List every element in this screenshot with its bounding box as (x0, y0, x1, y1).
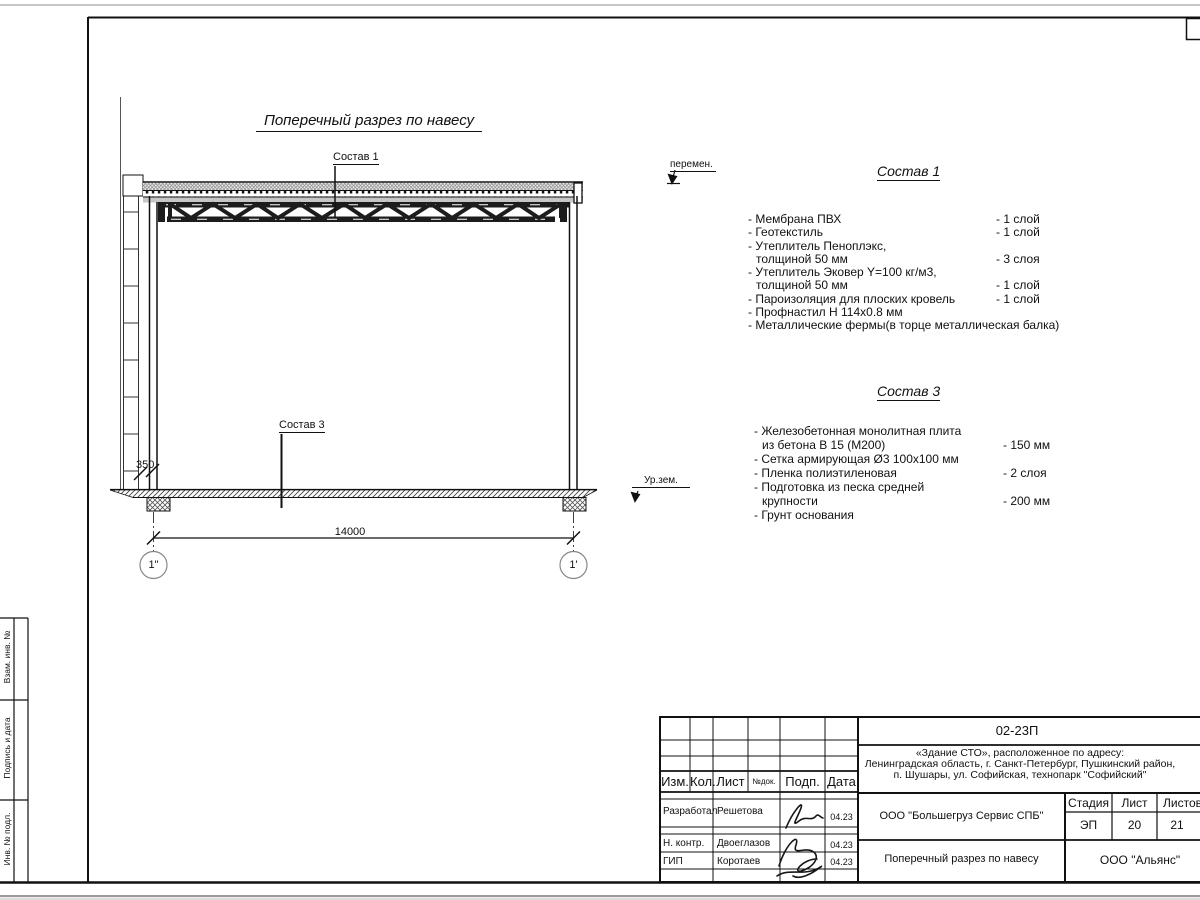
axis-markers (140, 552, 587, 579)
stamp-name-dvoeglazov: Двоеглазов (717, 838, 770, 849)
axis-label-left: 1" (140, 559, 167, 571)
dim-14000-label: 14000 (310, 526, 390, 538)
list-item: - Профнастил Н 114х0.8 мм (748, 306, 1093, 319)
sostav1-list: - Мембрана ПВХ- 1 слой - Геотекстиль- 1 … (748, 213, 1093, 333)
dim-350-label: 350 (136, 459, 154, 471)
col-header-izm: Изм. (660, 774, 690, 789)
list-item: - Подготовка из песка средней (754, 480, 1094, 494)
stamp-date-3: 04.23 (825, 857, 858, 867)
footings (147, 498, 586, 512)
stamp-doc-code: 02-23П (858, 723, 1176, 738)
list-item: - Геотекстиль- 1 слой (748, 226, 1093, 239)
col-header-kol: Кол. (690, 774, 713, 789)
signature-razrabotal (786, 805, 823, 828)
stamp-sheet-label: Лист (1112, 796, 1157, 810)
list-item: из бетона В 15 (М200)- 150 мм (754, 438, 1094, 452)
truss (158, 202, 570, 222)
col-header-ndok: №док. (748, 777, 780, 786)
stamp-sheet-value: 20 (1112, 818, 1157, 832)
truss-left-bearing (158, 202, 165, 222)
floor-slab (110, 490, 597, 498)
stamp-name-korotaev: Коротаев (717, 856, 760, 867)
stamp-date-1: 04.23 (825, 812, 858, 822)
stamp-org: ООО "Альянс" (1065, 853, 1200, 867)
stamp-role-gip: ГИП (663, 856, 683, 867)
stamp-company: ООО "Большегруз Сервис СПБ" (858, 810, 1065, 822)
sostav1-callout-label: Состав 1 (333, 151, 379, 165)
margin-label-podpis-data: Подпись и дата (2, 698, 12, 798)
drawing-title: Поперечный разрез по навесу (256, 112, 482, 132)
sostav3-title: Состав 3 (877, 383, 940, 401)
list-item: - Грунт основания (754, 508, 1094, 522)
drawing-sheet: Поперечный разрез по навесу Состав 1 Сос… (0, 0, 1200, 900)
roof-layers (143, 182, 583, 203)
sostav1-title: Состав 1 (877, 163, 940, 181)
col-header-data: Дата (825, 774, 858, 789)
list-item: - Пленка полиэтиленовая- 2 слоя (754, 466, 1094, 480)
list-item: - Мембрана ПВХ- 1 слой (748, 213, 1093, 226)
stamp-role-nkontr: Н. контр. (663, 838, 704, 849)
stamp-name-reshetova: Решетова (717, 806, 763, 817)
sostav3-list: - Железобетонная монолитная плита из бет… (754, 424, 1094, 522)
stamp-stage-value: ЭП (1065, 818, 1112, 832)
truss-right-bearing (560, 202, 567, 222)
corner-box (1187, 19, 1200, 40)
margin-label-inv-podl: Инв. № подл. (2, 798, 12, 880)
roof-right-cap (574, 183, 582, 203)
peremen-mark (667, 170, 680, 184)
stamp-stage-label: Стадия (1065, 796, 1112, 810)
list-item: крупности- 200 мм (754, 494, 1094, 508)
stamp-sheets-label: Листов (1163, 796, 1200, 810)
list-item: - Металлические фермы(в торце металличес… (748, 319, 1093, 332)
stamp-sheets-value: 21 (1157, 818, 1197, 832)
margin-label-vzam-inv: Взам. инв. № (2, 616, 12, 698)
columns (150, 196, 578, 490)
ground-level-label: Ур.зем. (632, 475, 690, 488)
list-item: - Утеплитель Эковер Y=100 кг/м3, (748, 266, 1093, 279)
peremen-label: перемен. (670, 159, 716, 172)
list-item: - Сетка армирующая Ø3 100х100 мм (754, 452, 1094, 466)
axis-label-right: 1' (560, 559, 587, 571)
ground-level-mark (632, 491, 640, 502)
stamp-role-razrabotal: Разработал (663, 806, 717, 817)
signatures (777, 805, 823, 877)
signature-gip (777, 839, 822, 877)
list-item: толщиной 50 мм- 3 слоя (748, 253, 1093, 266)
stamp-object-line3: п. Шушары, ул. Софийская, технопарк "Соф… (860, 769, 1180, 781)
col-header-list: Лист (713, 774, 748, 789)
list-item: - Железобетонная монолитная плита (754, 424, 1094, 438)
sostav3-callout-label: Состав 3 (279, 419, 325, 433)
list-item: толщиной 50 мм- 1 слой (748, 279, 1093, 292)
col-header-podp: Подп. (780, 774, 825, 789)
list-item: - Пароизоляция для плоских кровель- 1 сл… (748, 293, 1093, 306)
left-wall (123, 175, 143, 490)
list-item: - Утеплитель Пеноплэкс, (748, 240, 1093, 253)
stamp-doc-title: Поперечный разрез по навесу (858, 853, 1065, 865)
stamp-date-2: 04.23 (825, 840, 858, 850)
canopy-section-drawing (110, 97, 680, 579)
